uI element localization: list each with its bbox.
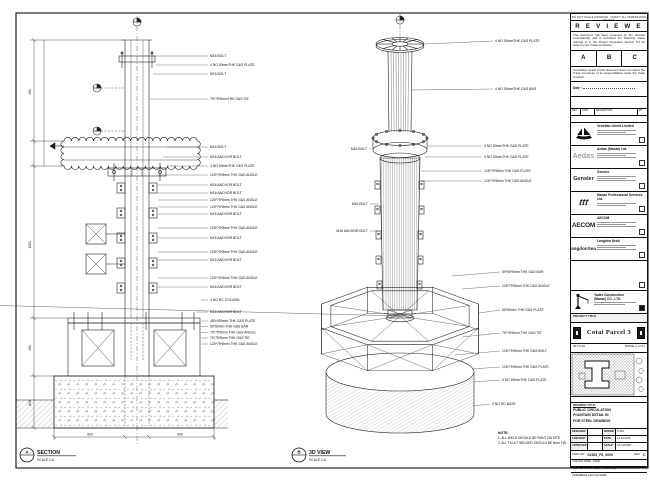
address-line xyxy=(597,245,636,246)
company-checkbox[interactable] xyxy=(639,206,645,212)
iso-level-marker xyxy=(396,16,404,24)
view-scale: SCALE 1:8 xyxy=(309,458,326,462)
callout: 450*450mm THK G&S PLATE xyxy=(210,319,256,323)
bubble-top: B xyxy=(297,450,301,455)
rev-col: REV xyxy=(571,109,581,115)
drawing-title-line: FOUNTAIN DETAIL IN xyxy=(573,413,645,417)
reviewed-stamp: R E V I E W E D This document has been r… xyxy=(571,21,647,109)
callout: M16 BOLT xyxy=(352,202,368,206)
revision-table-empty-row xyxy=(571,116,647,123)
status-option-c[interactable]: C xyxy=(622,51,647,67)
callout: M16 BOLT xyxy=(351,147,367,151)
key-plan-header: KEY PLAN PARCEL 3, LOT 2 xyxy=(571,344,647,353)
basin-coping xyxy=(61,137,200,169)
contractor-name-2: (Macau) CO., LTD. xyxy=(594,297,646,301)
section-view xyxy=(17,16,229,446)
callout: 4 NO 50mmTHK G&S PLATE xyxy=(484,155,529,159)
aedas-logo: Aedas xyxy=(571,146,596,168)
address-line xyxy=(597,222,636,223)
callout: M16 ANCHOR BOLT xyxy=(210,310,242,314)
date-value: 14-10-2015 xyxy=(616,436,647,443)
gensler-logo: Gensler xyxy=(571,169,596,191)
langdon-seah-logo: LangdonSeah xyxy=(571,238,596,260)
iso-view-label: B - 3D VIEW SCALE 1:8 xyxy=(292,448,346,462)
approved-value: - xyxy=(588,443,603,450)
dimension-bottom xyxy=(52,428,216,440)
status-option-a[interactable]: A xyxy=(571,51,597,67)
aecom-logo: AECOM xyxy=(571,215,596,237)
section-callout-leaders xyxy=(150,56,208,344)
drawing-title-block: DRAWING TITLE: PUBLIC CIRCULATION FOUNTA… xyxy=(571,403,647,429)
rev-value: C xyxy=(643,453,645,457)
callout: 4 NO 50mmTHK G&S PLATE xyxy=(210,164,255,168)
dim-text: 600 xyxy=(177,433,183,437)
drawing-title-line: FOR STEEL DRAWING xyxy=(573,419,645,423)
callout: 4 NO 50mmTHK G&S PLATE xyxy=(484,144,529,148)
approved-label: APPROVED xyxy=(571,443,588,450)
callout: M16 ANCHOR BOLT xyxy=(210,285,242,289)
address-line xyxy=(594,302,636,303)
callout: 125*75*8mm THK G&S ANGLE xyxy=(502,284,550,288)
revision-table-header: REV DATE DESCRIPTION BY xyxy=(571,109,647,116)
address-line xyxy=(597,132,626,133)
title-block: DO NOT SCALE DRAWING. VERIFY ALL DIMENSI… xyxy=(570,13,648,468)
iso-top-flange xyxy=(376,38,424,53)
iso-pipe-cluster xyxy=(388,51,412,132)
callout: 125*75*8mm THK G&S ANGLE xyxy=(210,250,258,254)
dim-text: 1250 xyxy=(28,241,32,248)
drawing-title-line: PUBLIC CIRCULATION xyxy=(573,408,645,412)
address-line xyxy=(597,153,636,154)
iso-base-cylinder xyxy=(326,353,474,433)
section-callouts: M16 BOLT 4 NO 50mmTHK G&S PLATE M16 BOLT… xyxy=(210,54,258,346)
date-label: DATE xyxy=(603,436,616,443)
address-line xyxy=(597,130,636,131)
address-line xyxy=(597,249,636,250)
callout: 125*75*8mm THK G&S PLATE xyxy=(502,365,550,369)
callout: 4 NO 50mmTHK G&S PLATE xyxy=(210,63,255,67)
address-line xyxy=(597,226,636,227)
dim-text: 450 xyxy=(28,89,32,95)
callout: 125*75*8mm THK G&S ANGLE xyxy=(210,342,258,346)
project-title: Cotai Parcel 3 xyxy=(571,323,647,344)
bubble-bottom: - xyxy=(298,457,300,462)
scale-label: SCALE xyxy=(603,443,616,450)
rev-label: REV : xyxy=(634,453,641,456)
callout: 4 NO RC BASE xyxy=(492,402,516,406)
company-checkbox[interactable] xyxy=(639,252,645,258)
note-title: NOTE: xyxy=(498,431,509,435)
designed-value: - xyxy=(588,429,603,436)
stamp-date-field[interactable] xyxy=(583,84,635,89)
address-line xyxy=(597,157,636,158)
checked-value: - xyxy=(588,436,603,443)
tie-frames xyxy=(86,224,125,274)
company-langdon-seah: LangdonSeah Langdon Seah xyxy=(571,238,647,261)
designed-label: DESIGNED xyxy=(571,429,588,436)
view-title: 3D VIEW xyxy=(309,450,330,456)
callout: 125*75*8mm THK G&S ANGLE xyxy=(210,226,258,230)
company-gensler: Gensler Gensler xyxy=(571,169,647,192)
callout: M16 BOLT xyxy=(210,54,226,58)
stamp-date-label: Date : xyxy=(573,86,582,90)
status-option-b[interactable]: B xyxy=(597,51,623,67)
stamp-body-2: Consultant review of this document does … xyxy=(571,67,647,82)
dim-text: 600 xyxy=(87,433,93,437)
company-aecom: AECOM AECOM xyxy=(571,215,647,238)
weld-symbol xyxy=(50,143,64,149)
scale-value: AS SHOWN xyxy=(616,443,647,450)
callout: M16 ANCHOR BOLT xyxy=(336,229,368,233)
callout: 125*75*8mm THK G&S ANGLE xyxy=(210,173,258,177)
bubble-bottom: - xyxy=(26,457,28,462)
address-line xyxy=(597,134,636,135)
bubble-top: A xyxy=(25,450,29,455)
cad-file-row-3: REFERENCE CAD FILE NAME : xyxy=(571,473,647,479)
callout: 75*75*8mm THK G&S TIE xyxy=(502,331,542,335)
level-marker-2 xyxy=(93,127,125,135)
callout: 125*75*8mm THK G&S ANGLE xyxy=(484,179,532,183)
checked-label: CHECKED xyxy=(571,436,588,443)
callout: 4 NO 50mmTHK G&S PLATE xyxy=(495,39,540,43)
address-line xyxy=(594,304,625,305)
cad-file-row-1: CAD FILE NAME : S1525 xyxy=(571,460,647,467)
company-checkbox[interactable] xyxy=(639,137,645,143)
callout: 125*75*8mm THK G&S PLATE xyxy=(484,169,532,173)
stamp-status-options: A B C xyxy=(571,51,647,68)
note-line: 2. ALL FILLET WELDED SHOULD BE 6mm FW. xyxy=(498,441,567,445)
address-line xyxy=(597,205,626,206)
callout: 75*75*8mmTHK G&S TIE xyxy=(210,97,249,101)
callout: 125*75*8mm THK G&S ANGLE xyxy=(210,205,258,209)
drawing-sheet: 450 1250 450 600 600 600 M16 BOLT 4 NO 5… xyxy=(0,0,650,488)
company-name: Venetian Orient Limited xyxy=(597,124,646,128)
dwg-no-row: DWG NO : S1525_FS_0000 REV : C xyxy=(571,451,647,460)
company-name: AECOM xyxy=(597,216,646,220)
company-macau-professional: ttt Macau Professional Services Ltd. xyxy=(571,192,647,215)
base-plate xyxy=(68,312,200,330)
address-line xyxy=(597,155,626,156)
project-title-text: Cotai Parcel 3 xyxy=(587,329,631,337)
foundation xyxy=(54,376,214,428)
company-empty-slot xyxy=(571,261,647,291)
callout: 4 NO 50mmTHK G&S BAR xyxy=(495,87,537,91)
dwg-no-label: DWG NO : xyxy=(573,453,586,456)
venetian-ship-icon xyxy=(571,123,596,145)
base-box xyxy=(68,323,200,376)
callout: 4 NO 50mmTHK G&S PLATE xyxy=(502,378,547,382)
callout: 125*75*8mm THK G&S ANGLE xyxy=(210,198,258,202)
cad-file-row-2: CAD FILE NAME : S1525_FS_0000.dwg xyxy=(571,467,647,474)
stamp-blank xyxy=(571,97,647,109)
view-title: SECTION xyxy=(37,450,60,456)
dim-text: 600 xyxy=(28,400,32,406)
contractor-block: Yadex Construction (Macau) CO., LTD. xyxy=(571,291,647,314)
callout: 50*50mm THK G&S BAR xyxy=(210,325,249,329)
company-name: Gensler xyxy=(597,170,646,174)
cad-drawing-canvas: 450 1250 450 600 600 600 M16 BOLT 4 NO 5… xyxy=(0,0,650,488)
level-marker-top xyxy=(133,18,141,26)
callout: 4 NO RC COLUMN xyxy=(210,298,240,302)
address-line xyxy=(597,178,626,179)
callout: 75*75*8mm THK G&S ANGLE xyxy=(210,331,256,335)
date-col: DATE xyxy=(581,109,595,115)
company-checkbox[interactable] xyxy=(639,229,645,235)
company-venetian: Venetian Orient Limited xyxy=(571,123,647,146)
stamp-date-row: Date : xyxy=(571,82,647,97)
company-checkbox[interactable] xyxy=(639,183,645,189)
address-line xyxy=(597,247,626,248)
iso-callouts: 4 NO 50mmTHK G&S PLATE 4 NO 50mmTHK G&S … xyxy=(336,39,550,406)
callout: M16 ANCHOR BOLT xyxy=(210,236,242,240)
address-line xyxy=(597,203,636,204)
section-view-label: A - SECTION SCALE 1:8 xyxy=(20,448,76,462)
callout: 125*75*8mm THK G&S ANGLE xyxy=(210,276,258,280)
dim-text: 450 xyxy=(28,345,32,351)
view-scale: SCALE 1:8 xyxy=(37,458,54,462)
callout: 125*75*8mm THK G&S BOLT xyxy=(502,349,547,353)
callout: 50*50*5mm THK G&S BAR xyxy=(502,270,544,274)
stamp-body-1: This document has been reviewed by the r… xyxy=(571,32,647,51)
address-line xyxy=(597,176,636,177)
callout: M16 ANCHOR BOLT xyxy=(210,183,242,187)
address-line xyxy=(597,180,636,181)
approval-fields: DESIGNED - DRAWN LUND CHECKED - DATE 14-… xyxy=(571,429,647,451)
drawn-label: DRAWN xyxy=(603,429,616,436)
company-checkbox[interactable] xyxy=(639,160,645,166)
key-plan-right-label: PARCEL 3, LOT 2 xyxy=(625,345,645,351)
callout: 50*50mm THK G&S PLATE xyxy=(502,308,544,312)
company-name: Macau Professional Services Ltd. xyxy=(597,193,646,201)
stamp-title: R E V I E W E D xyxy=(571,21,647,32)
address-line xyxy=(597,224,626,225)
company-checkbox[interactable] xyxy=(639,282,645,288)
company-aedas: Aedas Aedas (Macau) Ltd. xyxy=(571,146,647,169)
callout: M16 BOLT xyxy=(210,72,226,76)
company-name: Aedas (Macau) Ltd. xyxy=(597,147,646,151)
description-col: DESCRIPTION xyxy=(595,109,638,115)
ornament-icon xyxy=(573,327,581,339)
notes-block: NOTE: 1. ALL WELD SHOULD BE PAINT ON SIT… xyxy=(498,431,567,445)
contractor-checkbox[interactable] xyxy=(639,305,645,311)
callout: M16 ANCHOR BOLT xyxy=(210,212,242,216)
edge-note: DO NOT SCALE DRAWING. VERIFY ALL DIMENSI… xyxy=(571,14,647,21)
iso-view xyxy=(0,14,479,433)
callout: M16 ANCHOR BOLT xyxy=(210,191,242,195)
key-plan xyxy=(571,353,647,397)
callout: M16 BOLT xyxy=(210,145,226,149)
project-title-label: PROJECT TITLE xyxy=(571,314,647,323)
note-line: 1. ALL WELD SHOULD BE PAINT ON SITE. xyxy=(498,436,561,440)
mps-logo: ttt xyxy=(569,192,599,214)
callout: M16 ANCHOR BOLT xyxy=(210,155,242,159)
iso-shaft xyxy=(380,153,420,310)
company-name: Langdon Seah xyxy=(597,239,646,243)
key-plan-label: KEY PLAN xyxy=(573,345,585,351)
dwg-no-value: S1525_FS_0000 xyxy=(587,453,612,457)
ornament-icon xyxy=(637,327,645,339)
drawn-value: LUND xyxy=(616,429,647,436)
crane-icon xyxy=(571,291,593,313)
drawing-title-label: DRAWING TITLE: xyxy=(573,404,645,407)
callout: 75*75*8mm THK G&S TIE xyxy=(210,336,250,340)
level-marker-1 xyxy=(93,84,125,92)
callout: M16 ANCHOR BOLT xyxy=(210,258,242,262)
by-col: BY xyxy=(638,109,647,115)
